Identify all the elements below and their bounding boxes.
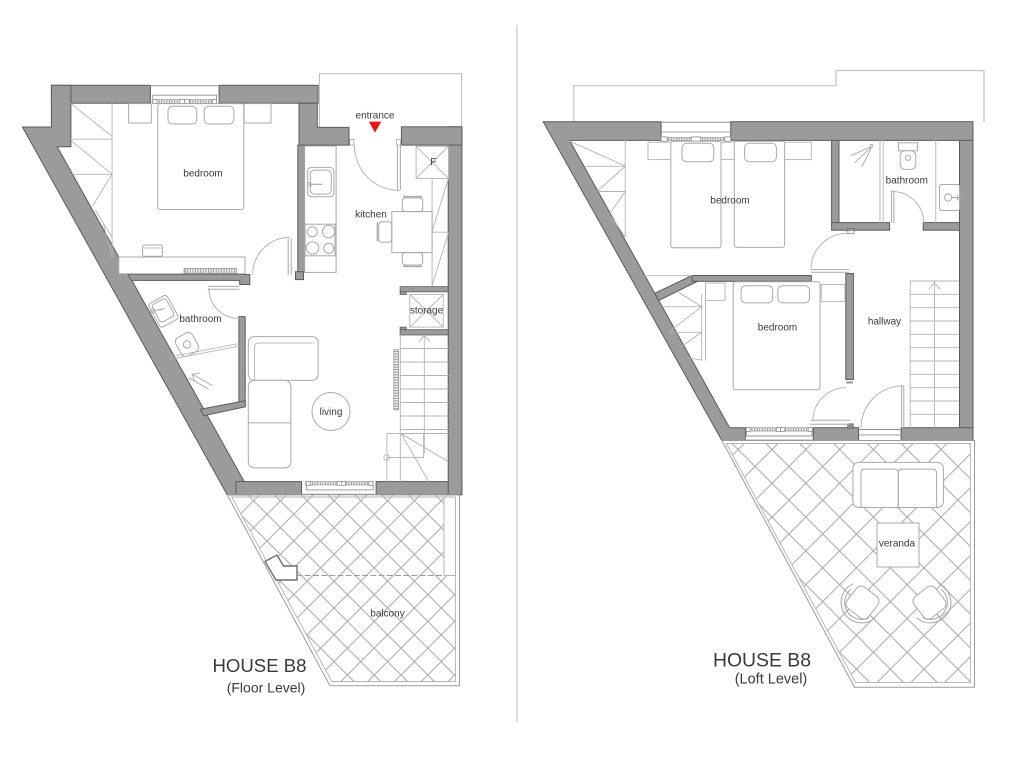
svg-text:kitchen: kitchen [355,209,387,220]
svg-text:(Loft Level): (Loft Level) [735,672,808,688]
svg-text:hallway: hallway [868,317,901,328]
svg-text:F: F [430,156,436,168]
svg-text:bathroom: bathroom [179,314,221,325]
svg-text:balcony: balcony [370,609,404,620]
svg-text:veranda: veranda [879,539,916,550]
svg-text:storage: storage [410,306,444,317]
svg-text:bedroom: bedroom [758,322,797,333]
svg-text:HOUSE B8: HOUSE B8 [713,649,811,671]
svg-text:HOUSE B8: HOUSE B8 [212,655,306,676]
svg-text:bedroom: bedroom [710,196,749,207]
svg-text:living: living [320,407,343,418]
svg-text:bathroom: bathroom [886,176,928,187]
svg-text:entrance: entrance [356,111,395,122]
svg-text:(Floor Level): (Floor Level) [227,679,306,695]
svg-text:bedroom: bedroom [183,169,222,180]
